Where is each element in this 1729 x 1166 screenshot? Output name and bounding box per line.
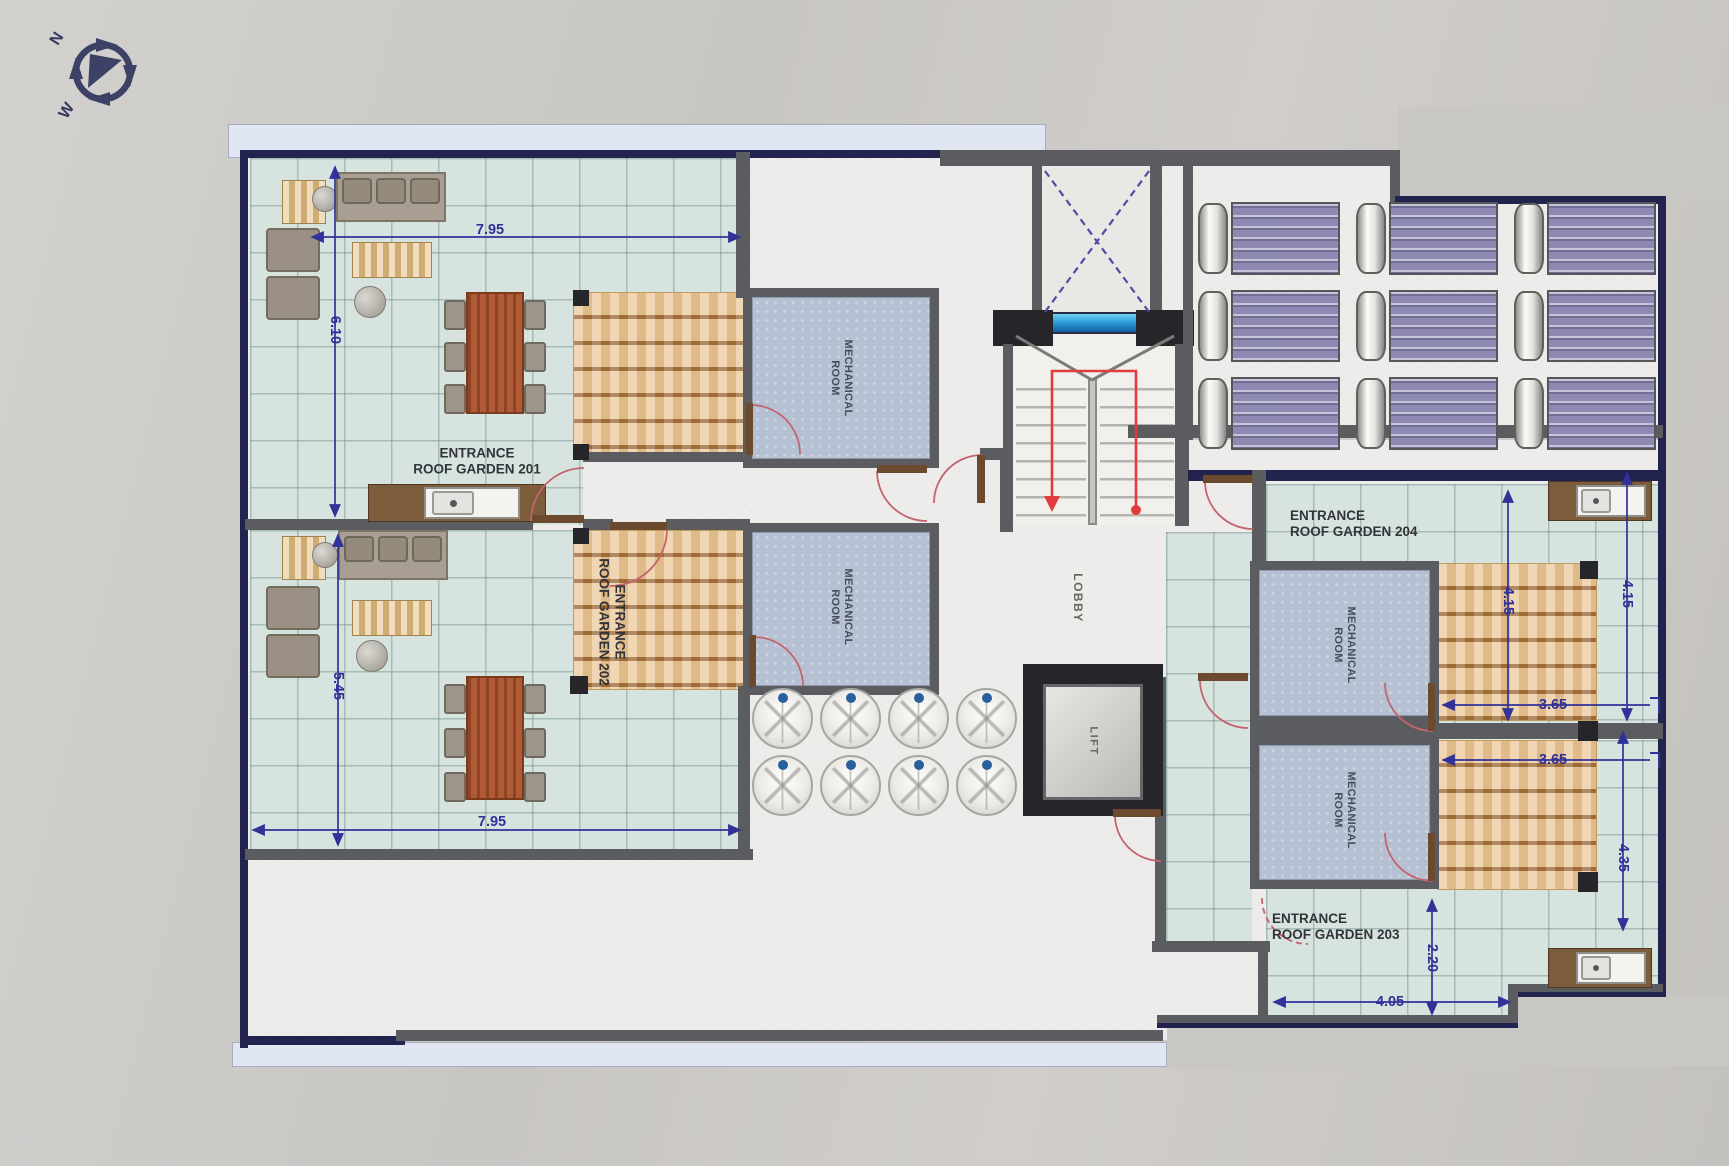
- armchair: [266, 228, 320, 272]
- mech-label-line1: MECHANICAL: [841, 569, 854, 646]
- pergola-204: [1437, 563, 1597, 721]
- sofa-cushion: [378, 536, 408, 562]
- solar-panel: [1231, 202, 1340, 275]
- skylight-domes: [752, 688, 1020, 818]
- solar-tank-cylinder: [1356, 378, 1386, 449]
- planter-pot: [312, 186, 338, 212]
- entrance-201-label: ENTRANCE ROOF GARDEN 201: [413, 445, 541, 476]
- pergola-post: [1578, 721, 1598, 741]
- skylight-dome: [888, 688, 949, 749]
- entrance-203-line2: ROOF GARDEN 203: [1272, 927, 1400, 943]
- solar-collector: [1198, 202, 1340, 275]
- entrance-201-line1: ENTRANCE: [413, 445, 541, 461]
- wall: [240, 150, 248, 1048]
- wall: [1258, 950, 1268, 1020]
- pergola-203: [1437, 740, 1597, 890]
- sofa: [338, 530, 448, 580]
- pergola-post: [1580, 561, 1598, 579]
- solar-panel: [1389, 377, 1498, 450]
- armchair: [266, 586, 320, 630]
- sink-drain: [1593, 965, 1599, 971]
- solar-collector: [1514, 202, 1656, 275]
- dining-chair: [524, 772, 546, 802]
- footprint-notch: [1516, 996, 1729, 1066]
- solar-tank-cylinder: [1198, 291, 1228, 362]
- round-table: [356, 640, 388, 672]
- entrance-202-line1: ENTRANCE: [612, 558, 628, 686]
- wall: [240, 150, 952, 158]
- solar-tank-cylinder: [1356, 203, 1386, 274]
- wall: [1250, 723, 1663, 739]
- mech-label-line2: ROOM: [1331, 607, 1344, 684]
- dining-chair: [444, 684, 466, 714]
- dining-chair: [524, 384, 546, 414]
- dim-garden204-edge-depth: 4.15: [1619, 580, 1635, 608]
- sofa-cushion: [410, 178, 440, 204]
- solar-tank-cylinder: [1356, 291, 1386, 362]
- dining-chair: [444, 300, 466, 330]
- solar-panel: [1231, 290, 1340, 363]
- wall: [240, 1036, 405, 1045]
- dining-chair: [444, 384, 466, 414]
- solar-tank-cylinder: [1198, 378, 1228, 449]
- sofa-cushion: [412, 536, 442, 562]
- wall: [1157, 1023, 1518, 1028]
- wall: [583, 452, 748, 462]
- entrance-201-line2: ROOF GARDEN 201: [413, 461, 541, 477]
- mech-label-line2: ROOM: [828, 569, 841, 646]
- wall: [1032, 164, 1042, 316]
- coffee-table: [352, 600, 432, 636]
- armchair: [266, 276, 320, 320]
- wall: [1252, 470, 1266, 572]
- sink-drain: [450, 500, 457, 507]
- skylight-dome: [888, 755, 949, 816]
- entrance-204-line1: ENTRANCE: [1290, 508, 1418, 524]
- dim-garden202-width: 7.95: [478, 814, 506, 830]
- skylight-dome: [752, 755, 813, 816]
- stair-rail: [1088, 378, 1097, 525]
- solar-panel: [1389, 202, 1498, 275]
- solar-collector: [1514, 290, 1656, 363]
- mechanical-room-202-label: MECHANICAL ROOM: [828, 569, 854, 646]
- entrance-corridor-floor: [583, 460, 750, 522]
- skylight-dome: [956, 688, 1017, 749]
- coffee-table: [352, 242, 432, 278]
- dim-garden203-bottom-width: 4.05: [1376, 994, 1404, 1010]
- wall: [736, 152, 750, 298]
- pergola-201: [573, 292, 745, 458]
- roof-floor-plan: N W ENTRANCE ROOF GARDEN 201 ENTRANCE RO…: [0, 0, 1729, 1166]
- solar-collector: [1514, 377, 1656, 450]
- wall: [940, 150, 1400, 166]
- solar-collector: [1356, 202, 1498, 275]
- solar-collector: [1356, 377, 1498, 450]
- dim-garden201-width: 7.95: [476, 222, 504, 238]
- dim-garden203-pergola-width: 3.65: [1539, 752, 1567, 768]
- sofa-cushion: [342, 178, 372, 204]
- solar-panel: [1231, 377, 1340, 450]
- footprint-notch: [1167, 1028, 1516, 1070]
- entrance-203-line1: ENTRANCE: [1272, 911, 1400, 927]
- solar-tank-cylinder: [1514, 378, 1544, 449]
- skylight-dome: [956, 755, 1017, 816]
- entrance-203-label: ENTRANCE ROOF GARDEN 203: [1272, 911, 1400, 942]
- dim-garden204-pergola-depth: 4.15: [1500, 587, 1516, 615]
- wall: [1000, 448, 1013, 532]
- dim-garden201-depth: 6.10: [327, 316, 343, 344]
- mechanical-room-201-label: MECHANICAL ROOM: [828, 340, 854, 417]
- mechanical-room-203-label: MECHANICAL ROOM: [1331, 772, 1357, 849]
- sofa-cushion: [344, 536, 374, 562]
- wall: [738, 686, 750, 858]
- footprint-notch: [1398, 106, 1729, 198]
- wall: [1512, 992, 1663, 997]
- solar-panel: [1547, 377, 1656, 450]
- round-table: [354, 286, 386, 318]
- solar-collectors: [1198, 202, 1656, 450]
- dining-table: [466, 292, 524, 414]
- wall: [1150, 164, 1162, 316]
- mech-label-line1: MECHANICAL: [1344, 607, 1357, 684]
- solar-panel: [1389, 290, 1498, 363]
- entrance-204-label: ENTRANCE ROOF GARDEN 204: [1290, 508, 1418, 539]
- solar-panel: [1547, 202, 1656, 275]
- solar-collector: [1198, 377, 1340, 450]
- mechanical-room-204-label: MECHANICAL ROOM: [1331, 607, 1357, 684]
- pergola-post: [570, 676, 588, 694]
- mech-label-line2: ROOM: [828, 340, 841, 417]
- stair-steps: [1016, 388, 1086, 523]
- solar-tank-cylinder: [1514, 203, 1544, 274]
- dining-chair: [524, 684, 546, 714]
- wall: [993, 310, 1053, 346]
- dining-chair: [524, 342, 546, 372]
- solar-collector: [1356, 290, 1498, 363]
- pergola-post: [573, 290, 589, 306]
- solar-tank-cylinder: [1198, 203, 1228, 274]
- entrance-204-line2: ROOF GARDEN 204: [1290, 524, 1418, 540]
- dim-garden202-depth: 5.45: [330, 672, 346, 700]
- skylight-dome: [752, 688, 813, 749]
- compass-north-label: N: [47, 29, 69, 49]
- dining-chair: [524, 728, 546, 758]
- wall: [1658, 196, 1666, 997]
- armchair: [266, 634, 320, 678]
- skylight-dome: [820, 755, 881, 816]
- pergola-post: [573, 528, 589, 544]
- wall: [1183, 164, 1193, 440]
- mech-label-line1: MECHANICAL: [1344, 772, 1357, 849]
- planter-pot: [312, 542, 338, 568]
- mech-label-line2: ROOM: [1331, 772, 1344, 849]
- dim-garden203-edge-depth: 4.35: [1615, 844, 1631, 872]
- dim-garden204-pergola-width: 3.65: [1539, 697, 1567, 713]
- solar-panel: [1547, 290, 1656, 363]
- skylight-dome: [820, 688, 881, 749]
- dining-chair: [444, 342, 466, 372]
- wall: [245, 849, 753, 860]
- wall: [1152, 941, 1270, 952]
- dim-garden203-entry-depth: 2.20: [1424, 944, 1440, 972]
- dining-chair: [444, 772, 466, 802]
- lobby-label: LOBBY: [1070, 573, 1084, 623]
- solar-tank-cylinder: [1514, 291, 1544, 362]
- parapet-band-bottom: [232, 1042, 1167, 1067]
- dining-chair: [444, 728, 466, 758]
- entrance-202-label: ENTRANCE ROOF GARDEN 202: [596, 558, 627, 686]
- sofa: [336, 172, 446, 222]
- lift-label: LIFT: [1087, 726, 1100, 755]
- pergola-post: [573, 444, 589, 460]
- dining-table: [466, 676, 524, 800]
- solar-collector: [1198, 290, 1340, 363]
- wall: [396, 1030, 1163, 1041]
- stair-void: [1042, 168, 1152, 314]
- compass-icon: [69, 38, 137, 106]
- wall: [666, 519, 750, 530]
- entrance-202-line2: ROOF GARDEN 202: [596, 558, 612, 686]
- sofa-cushion: [376, 178, 406, 204]
- stair-steps: [1100, 388, 1174, 523]
- compass-west-label: W: [56, 100, 80, 123]
- pergola-post: [1578, 872, 1598, 892]
- side-corridor-floor: [1166, 532, 1252, 950]
- sink-drain: [1593, 498, 1599, 504]
- dining-chair: [524, 300, 546, 330]
- stair-skylight: [1050, 312, 1140, 334]
- mech-label-line1: MECHANICAL: [841, 340, 854, 417]
